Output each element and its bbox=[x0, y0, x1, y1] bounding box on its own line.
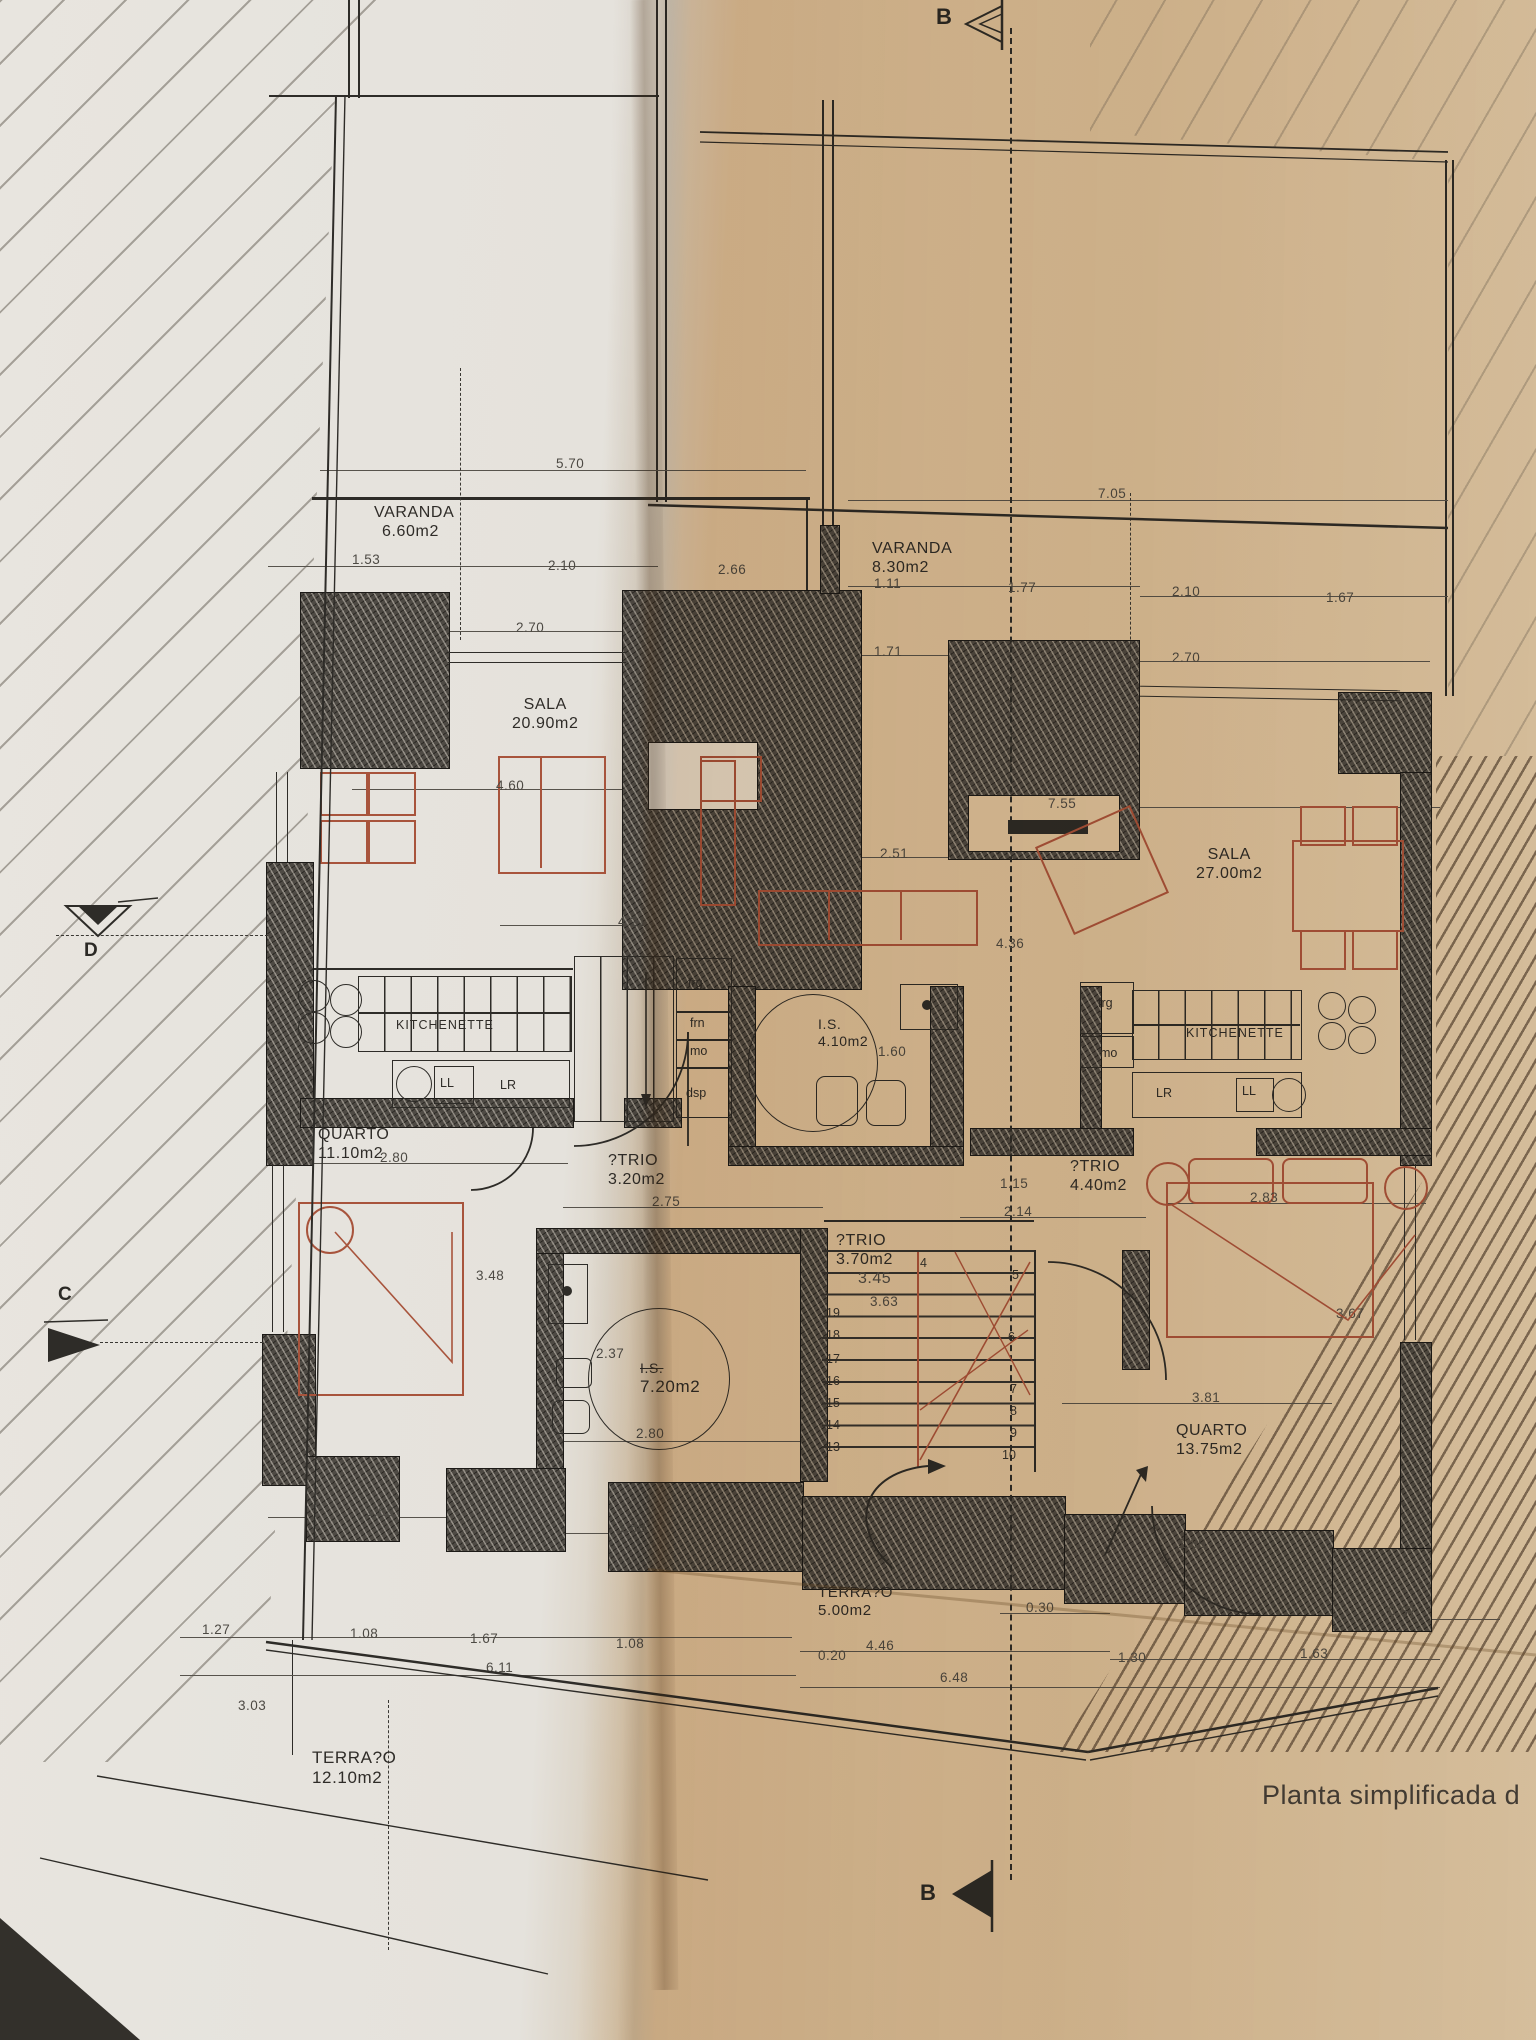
floorplan-photo: { "caption": "Planta simplificada d", "m… bbox=[0, 0, 1536, 2040]
section-marker-b-top-icon bbox=[966, 0, 1002, 50]
section-marker-c: C bbox=[58, 1284, 72, 1306]
up-arrow bbox=[641, 972, 1148, 1568]
bed-fold-lines bbox=[335, 1205, 1415, 1362]
linework-overlay bbox=[0, 0, 1536, 2040]
section-marker-b-bottom: B bbox=[920, 1880, 936, 1906]
drawing-caption: Planta simplificada d bbox=[1262, 1780, 1520, 1811]
section-marker-b-top: B bbox=[936, 4, 952, 30]
section-marker-c-icon bbox=[44, 1320, 108, 1362]
door-swing-arcs bbox=[471, 1032, 1260, 1614]
section-marker-d: D bbox=[84, 940, 98, 962]
section-marker-d-icon bbox=[66, 898, 158, 936]
stair-winder-lines bbox=[918, 1252, 1030, 1468]
site-boundary-lines bbox=[40, 95, 1448, 1974]
section-marker-b-bottom-icon bbox=[952, 1860, 992, 1932]
